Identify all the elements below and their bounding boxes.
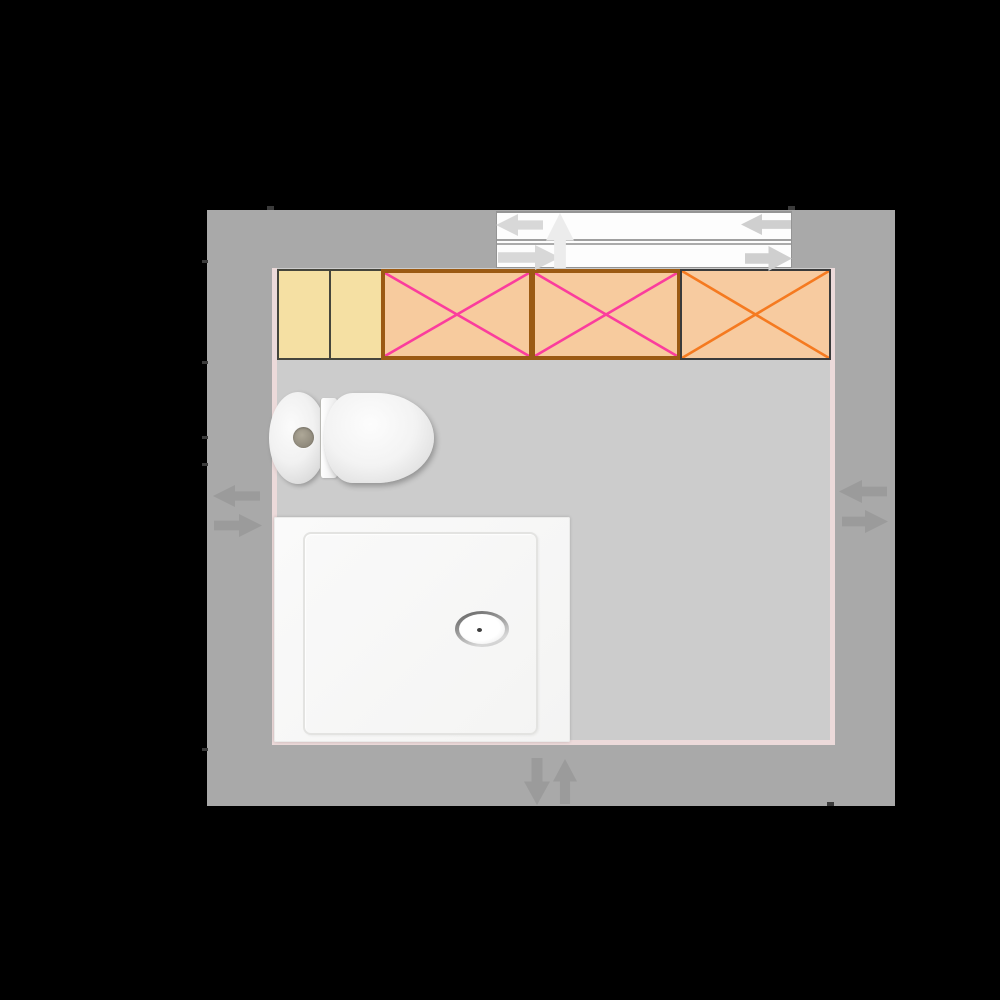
right-arrow-icon [842, 510, 888, 533]
right-arrow-icon [745, 246, 792, 271]
wall-measure-tick [267, 206, 274, 210]
left-arrow-icon [496, 214, 543, 236]
left-wall-right-arrow[interactable] [214, 514, 262, 537]
window-move-left-arrow[interactable] [496, 214, 543, 236]
cabinet-crossed-3[interactable] [680, 269, 831, 360]
wall-measure-tick [202, 436, 208, 439]
window-end-left-arrow[interactable] [741, 214, 791, 235]
window-move-up-arrow[interactable] [546, 213, 574, 268]
left-arrow-icon [213, 485, 260, 507]
cabinet-crossed-2[interactable] [531, 269, 681, 360]
wall-measure-tick [827, 802, 834, 806]
bottom-wall-down-arrow[interactable] [524, 758, 550, 805]
window-sash-line [497, 239, 791, 241]
right-wall-right-arrow[interactable] [842, 510, 888, 533]
cross-out-icon [682, 271, 829, 358]
left-arrow-icon [741, 214, 791, 235]
wall-measure-tick [202, 463, 208, 466]
wall-measure-tick [202, 361, 208, 364]
right-wall-left-arrow[interactable] [839, 480, 887, 503]
up-arrow-icon [546, 213, 574, 268]
toilet-flush-button[interactable] [293, 427, 314, 448]
down-arrow-icon [524, 758, 550, 805]
cabinet-plain-2[interactable] [329, 269, 383, 360]
toilet-seat[interactable] [324, 393, 434, 483]
planner-canvas [0, 0, 1000, 1000]
wall-measure-tick [202, 748, 208, 751]
wall-measure-tick [202, 260, 208, 263]
cross-out-icon [535, 273, 677, 356]
cabinet-crossed-1[interactable] [381, 269, 533, 360]
wall-measure-tick [788, 206, 795, 210]
cabinet-plain-1[interactable] [277, 269, 331, 360]
left-wall-left-arrow[interactable] [213, 485, 260, 507]
bottom-wall-up-arrow[interactable] [553, 759, 577, 804]
up-arrow-icon [553, 759, 577, 804]
cross-out-icon [385, 273, 529, 356]
window-end-right-arrow[interactable] [745, 246, 792, 271]
left-arrow-icon [839, 480, 887, 503]
right-arrow-icon [214, 514, 262, 537]
shower-drain [455, 611, 509, 647]
